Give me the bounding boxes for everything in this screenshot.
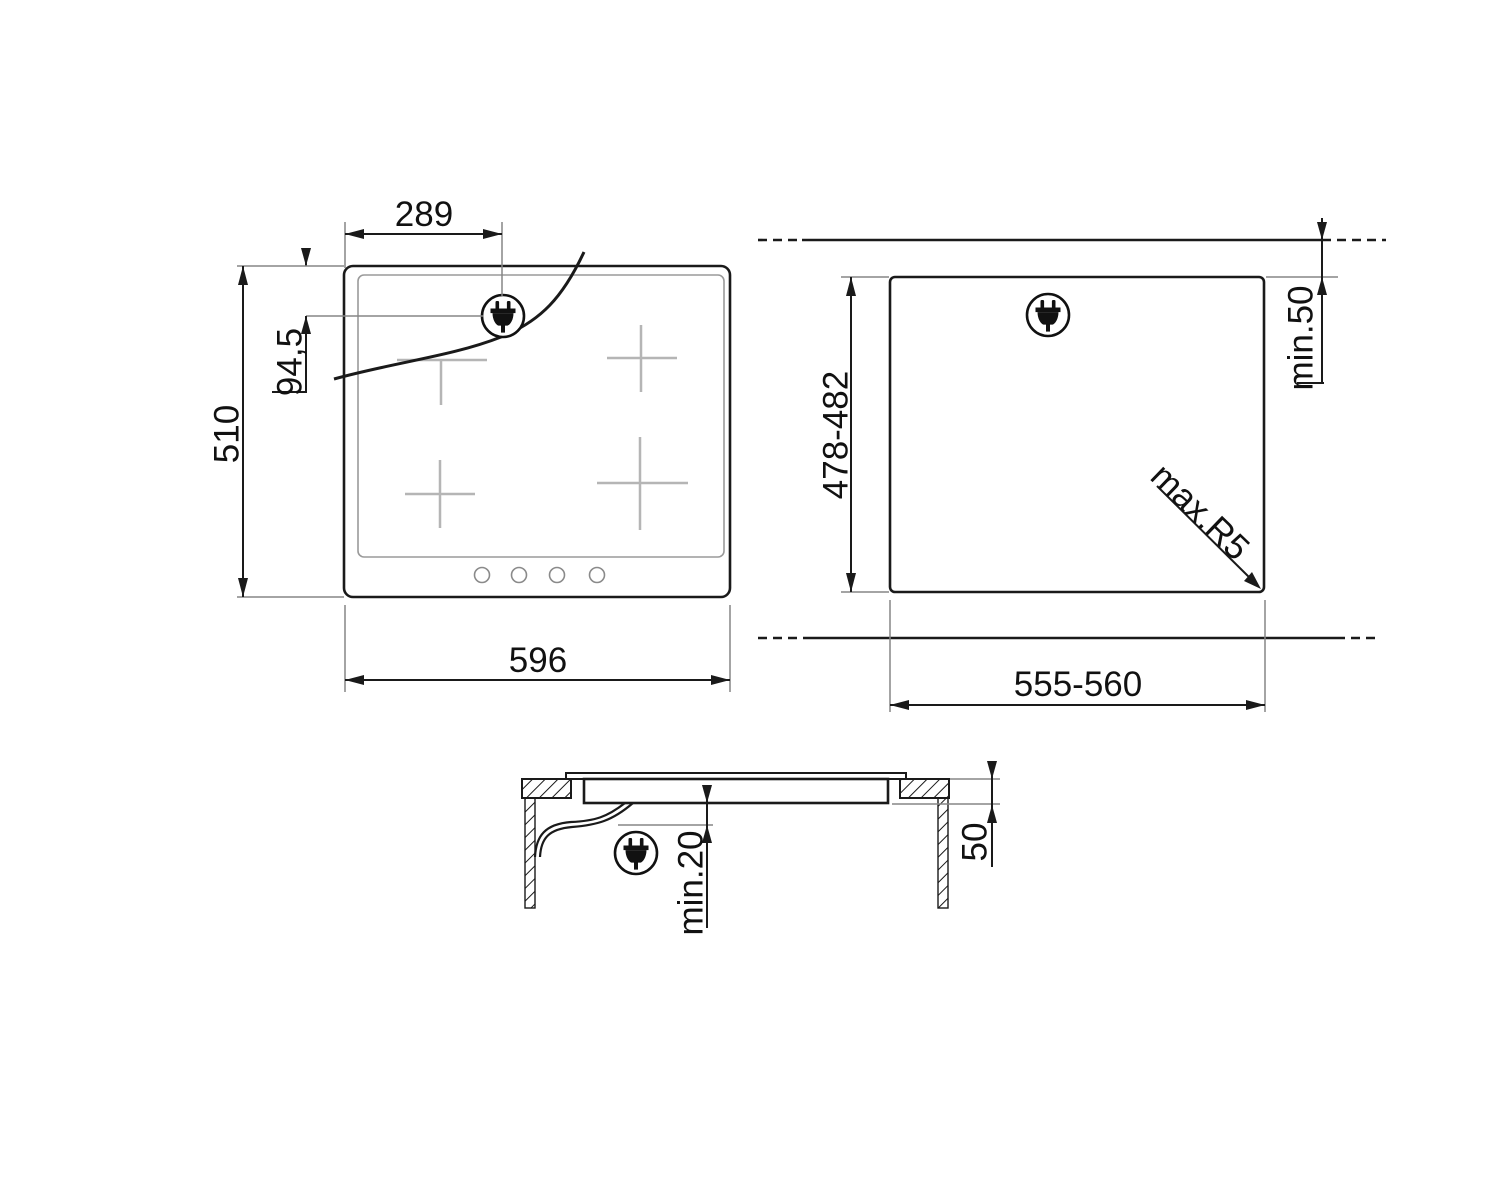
dim-label-596: 596 <box>509 641 567 680</box>
dim-cutout-width: 555-560 <box>890 600 1265 712</box>
worktop-section-right <box>900 779 949 798</box>
cabinet-panel-right <box>938 798 948 908</box>
dim-label-94-5: 94,5 <box>271 328 310 396</box>
side-section-view: min.20 50 <box>522 761 1000 936</box>
worktop-section-left <box>522 779 571 798</box>
drawing-canvas: 289 94,5 510 596 <box>0 0 1500 1200</box>
dim-label-478-482: 478-482 <box>817 371 856 499</box>
dim-label-555-560: 555-560 <box>1014 665 1142 704</box>
dim-label-min-50: min.50 <box>1282 285 1321 390</box>
dim-label-510: 510 <box>208 405 247 463</box>
installation-drawing: 289 94,5 510 596 <box>0 0 1500 1200</box>
power-plug-icon <box>615 832 657 874</box>
power-plug-icon <box>1027 294 1069 336</box>
power-plug-icon <box>482 295 524 337</box>
dim-hob-width: 596 <box>345 605 730 692</box>
dim-label-50: 50 <box>956 823 995 862</box>
worktop-cutout-view: 478-482 min.50 max.R5 555-560 <box>758 218 1386 712</box>
hob-top-view: 289 94,5 510 596 <box>208 195 731 692</box>
dim-label-289: 289 <box>395 195 453 234</box>
dim-min-rear-clearance: min.50 <box>1266 218 1338 391</box>
cabinet-panel-left <box>525 798 535 908</box>
dim-label-min-20: min.20 <box>672 830 711 935</box>
hob-body-section <box>584 779 888 803</box>
dim-cutout-depth: 478-482 <box>817 277 890 592</box>
